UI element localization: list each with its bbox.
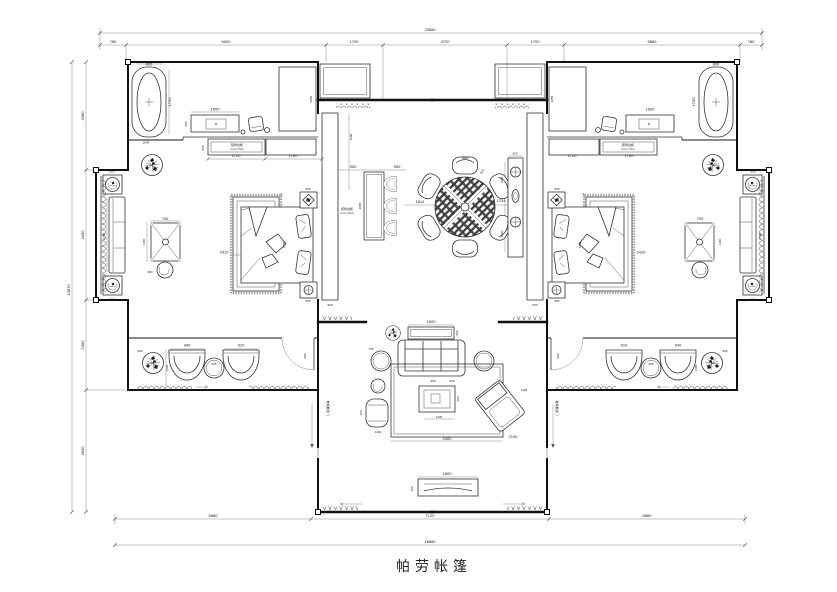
accent-table-label-en: Accent Table bbox=[621, 148, 635, 151]
dim-label: 1700 bbox=[568, 153, 578, 158]
dim-label: 900 bbox=[350, 164, 357, 169]
dining-table bbox=[435, 177, 495, 237]
bar-stool bbox=[384, 220, 397, 235]
pouf bbox=[371, 379, 385, 393]
window-sill bbox=[336, 104, 370, 109]
dim-label: 390 bbox=[147, 270, 152, 274]
dim-label: 1100 bbox=[694, 364, 698, 371]
accent-table-label-en: Accent Table bbox=[340, 212, 354, 215]
lounge-side-table bbox=[204, 358, 224, 378]
bar-stool bbox=[384, 198, 397, 213]
dim-label: 800 bbox=[146, 62, 153, 67]
dim-label: 590 bbox=[394, 164, 401, 169]
dim-label: 780 bbox=[748, 39, 755, 44]
bar-stool bbox=[384, 176, 397, 191]
bathtub bbox=[132, 67, 166, 137]
dim-label: 1800 bbox=[578, 241, 582, 248]
dim-label: 1700 bbox=[350, 39, 360, 44]
dim-label: 500 bbox=[455, 330, 459, 335]
dim-label: 700 bbox=[697, 216, 704, 221]
planter-box bbox=[320, 64, 370, 98]
dimension-ticks bbox=[70, 31, 764, 547]
pillow bbox=[296, 214, 312, 239]
dim-label: 500 bbox=[201, 145, 205, 150]
dim-label: 1500 bbox=[211, 107, 221, 112]
dim-label: 23660 bbox=[424, 27, 436, 32]
dim-label: 800 bbox=[713, 62, 720, 67]
dim-label: 1814 bbox=[416, 199, 426, 204]
dim-label: 355 bbox=[410, 486, 414, 491]
sliding-door-label: 玻璃推拉门 bbox=[555, 400, 560, 415]
decor-side-table bbox=[151, 223, 180, 261]
dim-label: 3380 bbox=[80, 111, 85, 121]
wing-suite bbox=[94, 60, 435, 515]
dim-label: 600 bbox=[109, 170, 114, 174]
dim-label: 1750 bbox=[167, 97, 172, 107]
tv-console bbox=[418, 479, 478, 496]
arrow-head-icon bbox=[310, 444, 314, 448]
door-swing bbox=[282, 338, 314, 370]
dim-label: 520 bbox=[456, 396, 460, 401]
dim-label: 780 bbox=[110, 39, 117, 44]
accent-table-label: 装饰台柜 bbox=[231, 142, 243, 147]
dim-label: 940 bbox=[184, 343, 191, 348]
drawing-title: 帕劳帐篷 bbox=[396, 559, 472, 575]
dim-label: 1350 bbox=[142, 238, 146, 245]
dim-label: 600 bbox=[109, 298, 114, 302]
dim-label: 1100 bbox=[165, 364, 169, 371]
accent-table-label: 装饰台柜 bbox=[622, 142, 634, 147]
dim-label: 1194 bbox=[375, 430, 382, 434]
dim-label: 325 bbox=[211, 362, 216, 366]
dim-label: 1750 bbox=[691, 97, 696, 107]
lattice-screen bbox=[322, 113, 338, 300]
wall-console bbox=[508, 158, 523, 257]
stool bbox=[157, 262, 173, 278]
dim-label: 700 bbox=[162, 216, 169, 221]
dim-label: 1700 bbox=[531, 39, 541, 44]
dining-set bbox=[415, 157, 514, 257]
window-sill bbox=[322, 316, 352, 321]
plant bbox=[386, 326, 401, 341]
dim-label: 325 bbox=[648, 362, 653, 366]
dim-label: 1800 bbox=[443, 471, 453, 476]
wing-suite-mirrored bbox=[431, 60, 772, 515]
dim-label: 3600 bbox=[80, 446, 85, 456]
dim-label: 7120 bbox=[426, 513, 436, 518]
dim-label: 2000 bbox=[358, 202, 362, 209]
dim-label: 500 bbox=[554, 187, 559, 191]
dim-label: 600 bbox=[750, 170, 755, 174]
accent-table-label-en: Accent Table bbox=[230, 148, 244, 151]
floor-plan-canvas: 23660 780 6000 1700 3720 1700 5880 780 5… bbox=[0, 0, 837, 592]
dim-label: 720 bbox=[359, 410, 363, 415]
dim-label: 1700 bbox=[289, 153, 299, 158]
annotations: 23660 780 6000 1700 3720 1700 5880 780 5… bbox=[66, 27, 762, 544]
dim-label: 500 bbox=[305, 299, 310, 303]
dim-label: 500 bbox=[305, 187, 310, 191]
dim-label: 1040 bbox=[143, 141, 150, 145]
sliding-door-label: 玻璃推拉门 bbox=[326, 400, 331, 415]
dim-label: 1800 bbox=[500, 176, 504, 183]
dim-label: 2050 bbox=[550, 95, 554, 102]
dim-label: 2400 bbox=[443, 436, 453, 441]
window-sill bbox=[137, 385, 192, 390]
window-sill bbox=[322, 506, 358, 511]
dim-label: 500 bbox=[554, 299, 559, 303]
dim-label: 1350 bbox=[718, 238, 722, 245]
center-hall bbox=[364, 157, 523, 257]
dim-label: 3720 bbox=[441, 39, 451, 44]
dim-label: 910 bbox=[238, 343, 245, 348]
dim-label: 450 bbox=[462, 155, 469, 160]
floor-plan-sheet: 23660 780 6000 1700 3720 1700 5880 780 5… bbox=[0, 0, 837, 592]
chaise-bench bbox=[366, 399, 388, 427]
dim-label: 950 bbox=[430, 379, 435, 383]
dim-label: 2050 bbox=[309, 95, 313, 102]
dim-label: 500 bbox=[532, 303, 537, 307]
dim-label: 550 bbox=[184, 121, 188, 126]
dim-label: 1700 bbox=[232, 153, 242, 158]
dim-label: 2200 bbox=[349, 133, 353, 140]
pillow bbox=[295, 250, 311, 275]
vanity-chair bbox=[248, 116, 264, 132]
dim-label: 4430 bbox=[80, 230, 85, 240]
counter-item bbox=[265, 128, 270, 133]
dim-label: 1500 bbox=[427, 319, 437, 324]
sofa-side-table bbox=[371, 351, 391, 371]
plant bbox=[142, 155, 163, 176]
coffee-table bbox=[419, 386, 455, 412]
dim-label: 500 bbox=[449, 379, 454, 383]
dim-label: 1800 bbox=[500, 230, 504, 237]
dim-label: 1800 bbox=[282, 241, 286, 248]
plant bbox=[143, 353, 164, 374]
dim-label: 18880 bbox=[424, 539, 436, 544]
dim-label: 5880 bbox=[209, 513, 219, 518]
bar-counter bbox=[364, 172, 384, 240]
dim-label: 1700 bbox=[625, 153, 635, 158]
dim-label: 5880 bbox=[648, 39, 658, 44]
dim-label: 2700 bbox=[758, 232, 762, 239]
dim-label: 900 bbox=[303, 353, 307, 358]
dim-label: 940 bbox=[675, 343, 682, 348]
sofa bbox=[398, 340, 465, 376]
dim-label: 2460 bbox=[80, 340, 85, 350]
dim-label: 2700 bbox=[102, 232, 106, 239]
dim-label: 1234 bbox=[497, 198, 507, 203]
dim-label: 360 bbox=[137, 349, 142, 353]
dim-label: 5880 bbox=[643, 513, 653, 518]
dim-label: 812 bbox=[479, 168, 485, 175]
dim-label: 1100 bbox=[521, 388, 528, 392]
dim-label: 6000 bbox=[222, 39, 232, 44]
dim-label: 2190 bbox=[509, 434, 519, 439]
dim-label: 360 bbox=[722, 349, 727, 353]
dim-label: 13870 bbox=[66, 284, 71, 296]
dimension-lines bbox=[70, 28, 764, 547]
dim-label: 2410 bbox=[637, 250, 647, 255]
counter-item bbox=[241, 130, 245, 134]
window-sill bbox=[249, 385, 309, 390]
bed-area bbox=[231, 192, 317, 298]
sofa-console bbox=[408, 327, 454, 339]
dim-label: 900 bbox=[556, 353, 560, 358]
accent-table-label: 装饰台柜 bbox=[341, 206, 353, 211]
dim-label: 500 bbox=[512, 152, 517, 156]
dim-label: 2410 bbox=[220, 250, 230, 255]
dim-label: 1200 bbox=[436, 415, 443, 419]
lounge-armchair bbox=[474, 380, 525, 433]
balcony-bench bbox=[109, 197, 125, 273]
dim-label: 600 bbox=[750, 298, 755, 302]
dim-label: 750 bbox=[368, 347, 373, 351]
dim-label: 910 bbox=[621, 343, 628, 348]
vanity-table bbox=[191, 115, 239, 132]
dim-label: 1500 bbox=[646, 107, 656, 112]
dim-label: 500 bbox=[327, 303, 332, 307]
